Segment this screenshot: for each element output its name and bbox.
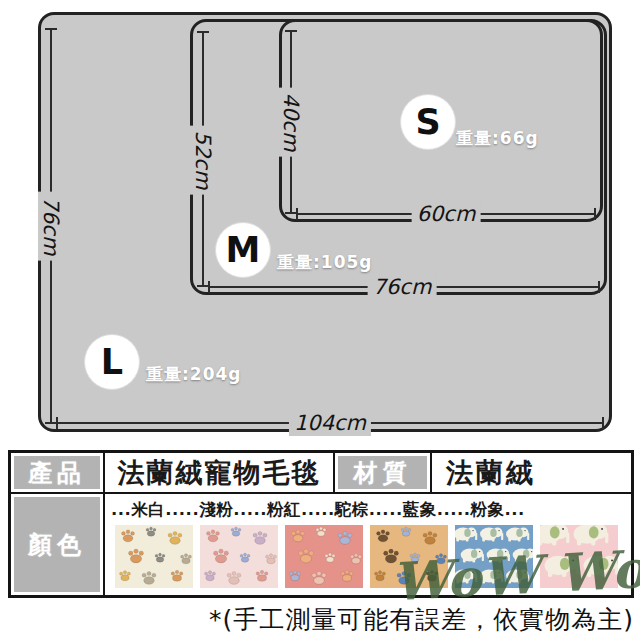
m-width-dim-label: 76cm	[368, 274, 437, 300]
size-diagram: 76cm 104cm 52cm 76cm 40cm 60cm L 重量:204g…	[0, 0, 640, 450]
swatch-lightpink-paw	[200, 525, 278, 588]
color-label: 顏色	[14, 497, 100, 592]
material-value-cell: 法蘭絨	[432, 453, 631, 494]
color-names-line: ...米白.....淺粉.....粉紅.....駝棕.....藍象.....粉象…	[105, 499, 525, 521]
product-label: 產品	[14, 456, 100, 489]
l-weight-label: 重量:204g	[146, 363, 241, 386]
size-badge-m-letter: M	[226, 230, 261, 270]
product-value-cell: 法蘭絨寵物毛毯	[105, 453, 335, 494]
size-badge-m: M	[215, 222, 271, 278]
material-label: 材質	[338, 456, 427, 489]
product-label-cell: 產品	[11, 453, 105, 494]
size-badge-s-letter: S	[415, 102, 440, 142]
l-height-dim-label: 76cm	[38, 192, 64, 261]
m-height-dim-label: 52cm	[190, 126, 216, 195]
size-badge-s: S	[400, 94, 456, 150]
size-badge-l-letter: L	[101, 342, 123, 382]
material-label-cell: 材質	[335, 453, 432, 494]
l-width-dim-label: 104cm	[289, 410, 371, 436]
color-label-cell: 顏色	[11, 494, 105, 595]
swatch-beige-paw	[115, 525, 193, 588]
s-height-dim-label: 40cm	[278, 88, 304, 157]
m-weight-label: 重量:105g	[277, 251, 372, 274]
s-width-dim-label: 60cm	[412, 201, 481, 227]
size-badge-l: L	[84, 334, 140, 390]
product-size-infographic: 76cm 104cm 52cm 76cm 40cm 60cm L 重量:204g…	[0, 0, 640, 640]
s-weight-label: 重量:66g	[456, 127, 539, 150]
swatch-pink-paw	[285, 525, 363, 588]
